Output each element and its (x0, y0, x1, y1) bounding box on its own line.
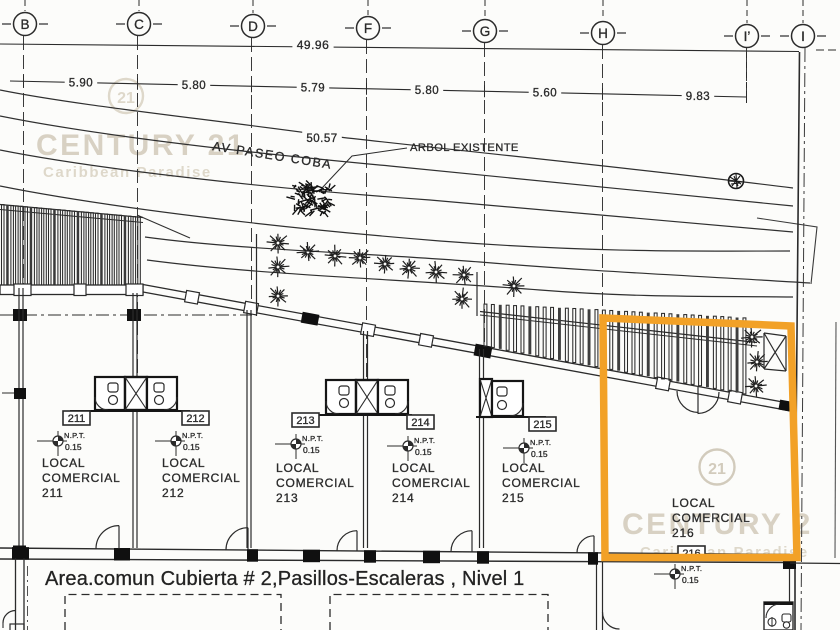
svg-text:COMERCIAL: COMERCIAL (162, 471, 241, 485)
svg-text:214: 214 (392, 491, 414, 505)
svg-text:N.P.T.: N.P.T. (681, 564, 702, 573)
svg-text:215: 215 (533, 419, 551, 431)
svg-text:Caribbean Paradise: Caribbean Paradise (43, 164, 212, 181)
svg-text:0.15: 0.15 (183, 442, 200, 452)
svg-text:LOCAL: LOCAL (276, 461, 319, 475)
svg-text:21: 21 (117, 90, 135, 107)
svg-text:5.80: 5.80 (415, 85, 439, 97)
svg-text:49.96: 49.96 (297, 38, 330, 52)
svg-text:213: 213 (296, 415, 314, 427)
svg-text:LOCAL: LOCAL (502, 461, 545, 475)
svg-text:COMERCIAL: COMERCIAL (42, 471, 121, 485)
svg-text:21: 21 (708, 461, 726, 478)
svg-text:212: 212 (186, 413, 204, 425)
svg-text:0.15: 0.15 (65, 442, 82, 452)
svg-text:LOCAL: LOCAL (42, 456, 85, 470)
svg-text:N.P.T.: N.P.T. (302, 434, 323, 443)
svg-text:5.80: 5.80 (182, 80, 206, 92)
svg-text:5.79: 5.79 (301, 83, 325, 95)
svg-text:B: B (20, 17, 29, 32)
svg-text:COMERCIAL: COMERCIAL (672, 511, 751, 525)
svg-text:50.57: 50.57 (306, 133, 337, 145)
svg-text:Area.comun Cubierta # 2,Pasill: Area.comun Cubierta # 2,Pasillos-Escaler… (45, 568, 525, 590)
svg-text:N.P.T.: N.P.T. (182, 431, 203, 440)
svg-text:9.83: 9.83 (686, 91, 710, 103)
svg-text:D: D (248, 19, 258, 34)
svg-text:N.P.T.: N.P.T. (530, 438, 551, 447)
svg-text:0.15: 0.15 (682, 575, 699, 585)
svg-text:N.P.T.: N.P.T. (414, 436, 435, 445)
svg-text:LOCAL: LOCAL (162, 456, 205, 470)
svg-text:ARBOL EXISTENTE: ARBOL EXISTENTE (410, 142, 519, 154)
svg-text:0.15: 0.15 (303, 445, 320, 455)
svg-text:0.15: 0.15 (415, 447, 432, 457)
svg-text:LOCAL: LOCAL (392, 461, 435, 475)
svg-text:0.15: 0.15 (531, 449, 548, 459)
svg-text:COMERCIAL: COMERCIAL (276, 476, 355, 490)
svg-text:C: C (134, 17, 144, 32)
svg-text:I’: I’ (744, 29, 751, 44)
svg-text:I: I (801, 29, 805, 44)
svg-text:COMERCIAL: COMERCIAL (502, 476, 581, 490)
svg-text:5.90: 5.90 (69, 78, 93, 90)
svg-text:214: 214 (411, 417, 429, 429)
svg-text:215: 215 (502, 491, 524, 505)
svg-text:G: G (480, 24, 491, 39)
svg-text:COMERCIAL: COMERCIAL (392, 476, 471, 490)
svg-text:216: 216 (672, 526, 694, 540)
svg-text:F: F (364, 21, 372, 36)
svg-text:H: H (598, 26, 608, 41)
svg-text:5.60: 5.60 (533, 88, 557, 100)
svg-text:LOCAL: LOCAL (672, 496, 715, 510)
svg-text:211: 211 (68, 413, 86, 425)
svg-text:212: 212 (162, 486, 184, 500)
svg-text:213: 213 (276, 491, 298, 505)
svg-text:211: 211 (42, 486, 64, 500)
svg-text:N.P.T.: N.P.T. (64, 431, 85, 440)
